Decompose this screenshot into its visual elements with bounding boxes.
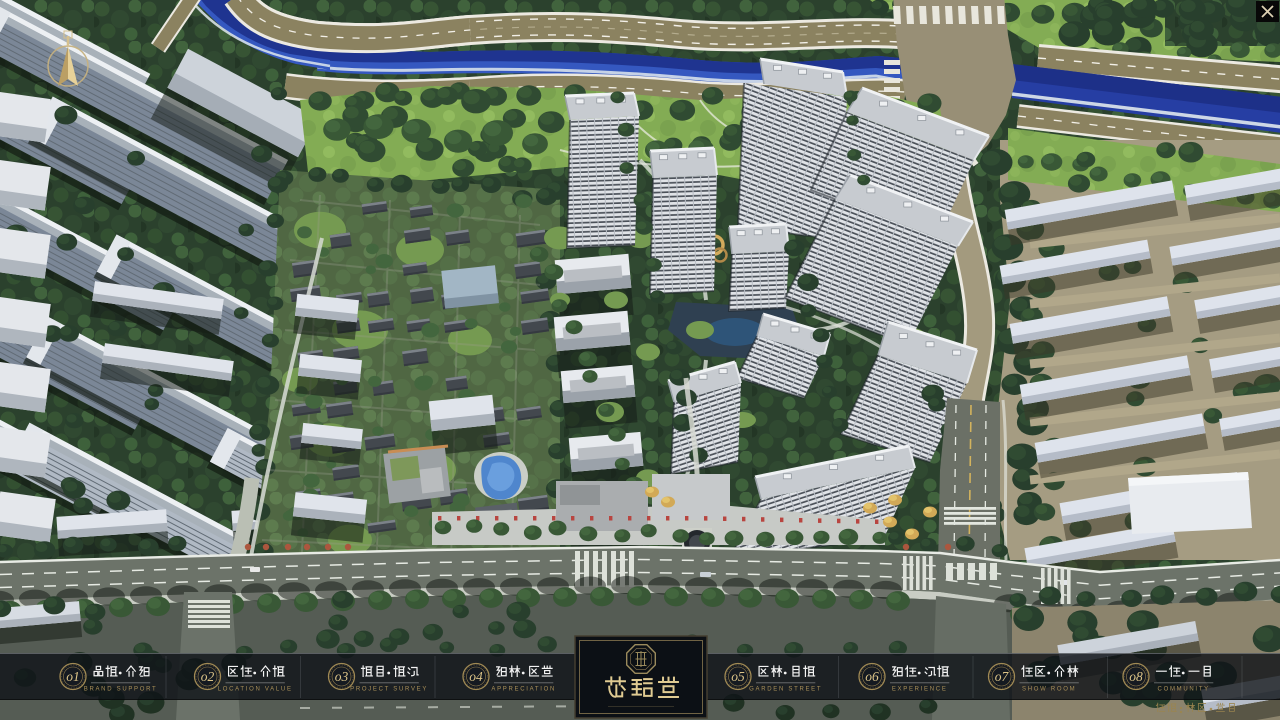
svg-text:o2: o2 [201,669,215,684]
svg-text:COMMUNITY: COMMUNITY [1158,687,1210,693]
svg-text:SHOW ROOM: SHOW ROOM [1022,687,1076,693]
svg-text:o3: o3 [335,669,349,684]
svg-text:o8: o8 [1129,669,1143,684]
svg-text:BRAND SUPPORT: BRAND SUPPORT [84,687,158,693]
svg-text:GARDEN STREET: GARDEN STREET [749,687,822,693]
svg-text:o7: o7 [995,669,1010,684]
svg-text:o4: o4 [469,669,483,684]
svg-text:LOCATION VALUE: LOCATION VALUE [218,687,293,693]
svg-text:EXPERIENCE: EXPERIENCE [892,687,948,693]
svg-text:o6: o6 [865,669,879,684]
svg-text:o5: o5 [731,669,745,684]
svg-text:APPRECIATION: APPRECIATION [491,687,556,693]
svg-text:o1: o1 [66,669,80,684]
svg-text:PROJECT SURVEY: PROJECT SURVEY [350,687,428,693]
